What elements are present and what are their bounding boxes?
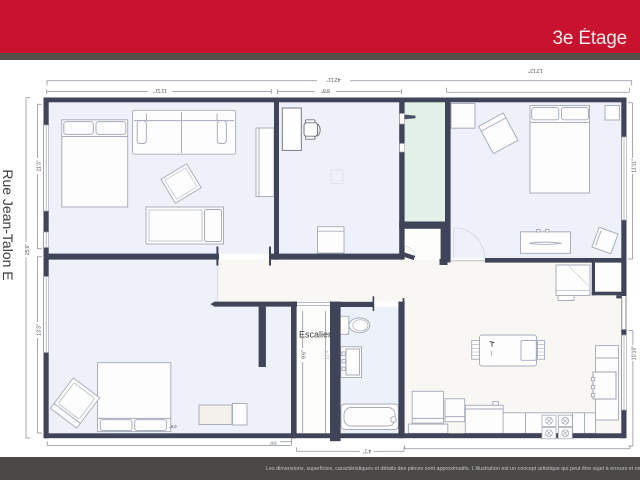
svg-text:8'8": 8'8" <box>321 87 330 93</box>
svg-text:25'6": 25'6" <box>25 244 31 256</box>
svg-text:4'1": 4'1" <box>363 447 372 453</box>
svg-text:Escalier: Escalier <box>299 330 331 340</box>
svg-text:5'6": 5'6" <box>269 441 276 446</box>
svg-text:11'3": 11'3" <box>36 160 42 171</box>
svg-text:9'6": 9'6" <box>302 350 308 359</box>
svg-text:11'11": 11'11" <box>153 87 167 93</box>
svg-text:13'3": 13'3" <box>36 324 42 336</box>
svg-text:6'9": 6'9" <box>169 424 177 429</box>
svg-text:12'12": 12'12" <box>528 67 543 73</box>
svg-text:42'11": 42'11" <box>326 76 340 82</box>
svg-text:11'4": 11'4" <box>324 349 330 360</box>
svg-text:10'10": 10'10" <box>631 346 637 361</box>
svg-text:11'11": 11'11" <box>631 159 637 173</box>
